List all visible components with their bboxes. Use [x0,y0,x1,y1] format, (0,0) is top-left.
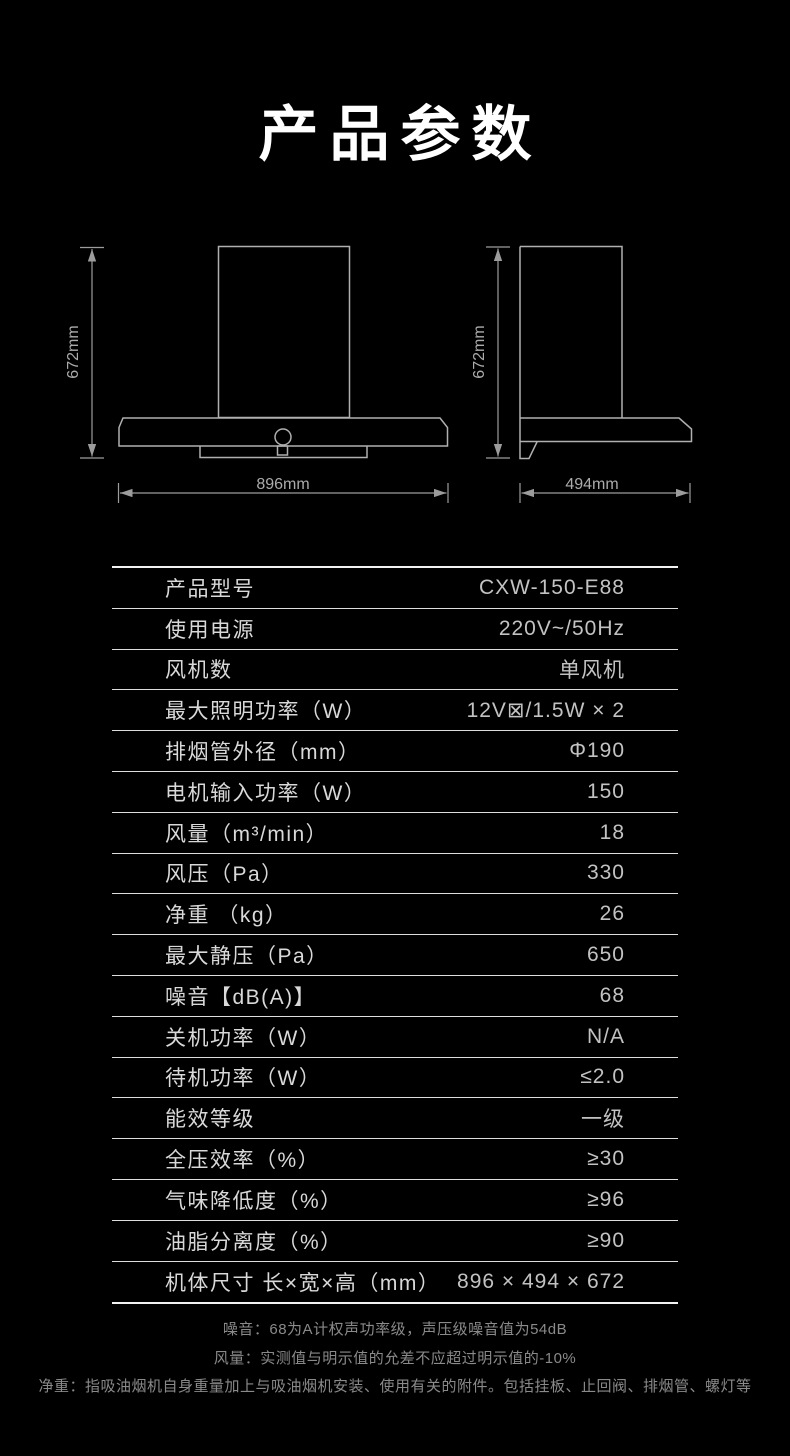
table-row: 产品型号 CXW-150-E88 [112,568,678,609]
front-width-label: 896mm [256,476,309,493]
table-row: 最大静压（Pa） 650 [112,935,678,976]
control-knob-icon [275,429,291,445]
spec-table: 产品型号 CXW-150-E88 使用电源 220V~/50Hz 风机数 单风机… [112,566,678,1304]
table-row: 关机功率（W） N/A [112,1017,678,1058]
spec-label: 关机功率（W） [165,1022,321,1052]
table-row: 能效等级 一级 [112,1098,678,1139]
table-row: 电机输入功率（W） 150 [112,772,678,813]
page-title: 产品参数 [0,86,790,173]
spec-value: 150 [587,780,625,804]
side-height-dimension [486,247,510,458]
spec-value: 68 [600,984,625,1008]
spec-label: 净重 （kg） [165,899,288,929]
side-height-label: 672mm [471,325,488,378]
side-depth-label: 494mm [565,476,618,493]
spec-label: 最大静压（Pa） [165,940,329,970]
spec-label: 电机输入功率（W） [165,777,366,807]
spec-value: 12V⊠/1.5W × 2 [467,698,625,723]
dimension-diagrams: 672mm 896mm 672mm 494mm [0,233,790,518]
spec-label: 风量（m³/min） [165,818,328,848]
spec-value: 一级 [581,1103,625,1133]
front-height-dimension [80,248,104,459]
table-row: 最大照明功率（W） 12V⊠/1.5W × 2 [112,690,678,731]
spec-value: 单风机 [559,654,625,684]
spec-value: N/A [587,1025,625,1049]
spec-label: 风机数 [165,654,233,684]
spec-value: ≤2.0 [580,1065,625,1089]
footnote-airflow: 风量：实测值与明示值的允差不应超过明示值的-10% [0,1345,790,1374]
spec-label: 机体尺寸 长×宽×高（mm） [165,1267,440,1297]
spec-label: 气味降低度（%） [165,1185,343,1215]
spec-label: 使用电源 [165,614,255,644]
spec-value: ≥96 [587,1188,625,1212]
table-row: 风量（m³/min） 18 [112,813,678,854]
side-view-diagram [520,247,692,459]
spec-value: ≥90 [587,1229,625,1253]
front-vent-slot [278,446,288,455]
spec-label: 最大照明功率（W） [165,695,366,725]
spec-label: 全压效率（%） [165,1144,320,1174]
table-row: 风压（Pa） 330 [112,854,678,895]
spec-label: 风压（Pa） [165,858,284,888]
footnote-noise: 噪音：68为A计权声功率级，声压级噪音值为54dB [0,1316,790,1345]
spec-value: CXW-150-E88 [479,576,625,600]
spec-label: 待机功率（W） [165,1062,321,1092]
table-row: 噪音【dB(A)】 68 [112,976,678,1017]
front-body-outline [119,418,448,446]
spec-label: 能效等级 [165,1103,255,1133]
table-row: 净重 （kg） 26 [112,894,678,935]
spec-label: 排烟管外径（mm） [165,736,361,766]
table-row: 使用电源 220V~/50Hz [112,609,678,650]
table-row: 气味降低度（%） ≥96 [112,1180,678,1221]
spec-value: 650 [587,943,625,967]
spec-value: Φ190 [569,739,625,763]
spec-value: 26 [600,902,625,926]
table-row: 机体尺寸 长×宽×高（mm） 896 × 494 × 672 [112,1262,678,1303]
table-row: 油脂分离度（%） ≥90 [112,1221,678,1262]
spec-value: 330 [587,861,625,885]
table-row: 风机数 单风机 [112,650,678,691]
footnotes: 噪音：68为A计权声功率级，声压级噪音值为54dB 风量：实测值与明示值的允差不… [0,1316,790,1402]
table-row: 全压效率（%） ≥30 [112,1139,678,1180]
footnote-weight: 净重：指吸油烟机自身重量加上与吸油烟机安装、使用有关的附件。包括挂板、止回阀、排… [0,1373,790,1402]
spec-value: ≥30 [587,1147,625,1171]
spec-value: 18 [600,821,625,845]
front-view-diagram [119,247,448,458]
spec-label: 噪音【dB(A)】 [165,981,316,1011]
table-row: 待机功率（W） ≤2.0 [112,1058,678,1099]
front-base-outline [200,446,367,458]
table-row: 排烟管外径（mm） Φ190 [112,731,678,772]
front-height-label: 672mm [65,325,82,378]
spec-label: 油脂分离度（%） [165,1226,343,1256]
side-body-outline [520,247,692,459]
spec-label: 产品型号 [165,573,255,603]
front-chimney-outline [219,247,350,418]
spec-value: 896 × 494 × 672 [457,1270,625,1294]
spec-value: 220V~/50Hz [499,617,625,641]
